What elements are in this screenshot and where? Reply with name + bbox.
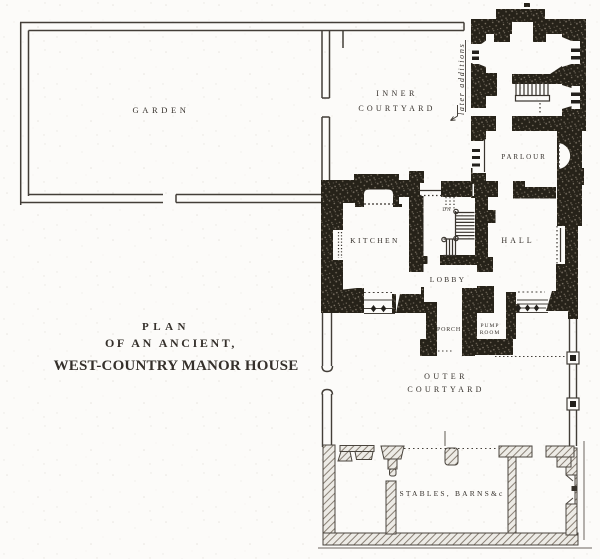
svg-text:LOBBY: LOBBY	[430, 275, 466, 284]
svg-text:PLAN: PLAN	[142, 321, 190, 333]
svg-text:GARDEN: GARDEN	[132, 105, 189, 115]
svg-text:COURTYARD: COURTYARD	[407, 385, 484, 394]
svg-text:PORCH: PORCH	[437, 327, 461, 333]
svg-text:HALL: HALL	[501, 236, 534, 245]
svg-text:WEST-COUNTRY MANOR HOUSE: WEST-COUNTRY MANOR HOUSE	[54, 358, 299, 374]
svg-text:OF AN ANCIENT,: OF AN ANCIENT,	[105, 336, 237, 350]
svg-text:COURTYARD: COURTYARD	[358, 104, 435, 113]
svg-text:STABLES, BARNS&c: STABLES, BARNS&c	[399, 489, 504, 498]
svg-text:KITCHEN: KITCHEN	[350, 236, 400, 245]
svg-text:PUMP: PUMP	[481, 323, 500, 329]
svg-text:PARLOUR: PARLOUR	[501, 153, 546, 161]
svg-text:OUTER: OUTER	[424, 372, 468, 381]
svg-text:ROOM: ROOM	[480, 330, 501, 336]
svg-text:later additions: later additions	[457, 43, 466, 115]
svg-text:DN: DN	[442, 208, 451, 213]
svg-text:INNER: INNER	[376, 89, 417, 98]
